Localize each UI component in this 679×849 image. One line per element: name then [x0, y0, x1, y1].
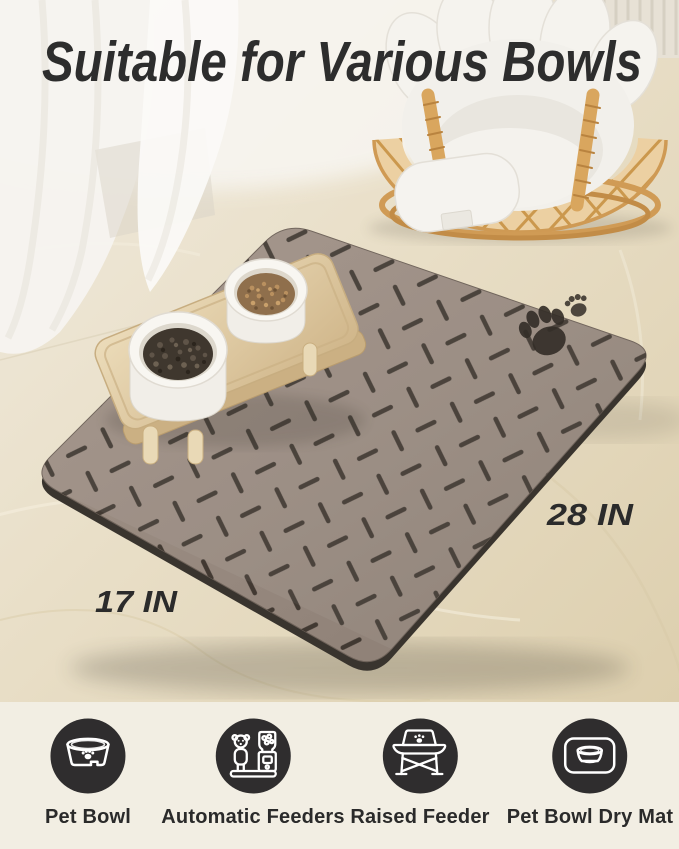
pet-bowl-left: [129, 312, 227, 421]
raised-feeder-icon: [381, 717, 459, 795]
feature-pet-bowl-dry-mat: Pet Bowl Dry Mat: [507, 717, 674, 829]
feature-automatic-feeders: Automatic Feeders: [161, 717, 344, 829]
feature-label: Raised Feeder: [350, 806, 489, 829]
feature-label: Automatic Feeders: [161, 806, 344, 829]
feature-label: Pet Bowl Dry Mat: [507, 806, 674, 829]
pet-bowl-icon: [49, 717, 127, 795]
feature-raised-feeder: Raised Feeder: [350, 717, 489, 829]
photo-illustration: 28 IN 17 IN Suitable for Various Bowls: [0, 0, 679, 702]
pet-bowl-right: [225, 259, 307, 343]
product-image: 28 IN 17 IN Suitable for Various Bowls: [0, 0, 679, 849]
feature-label: Pet Bowl: [45, 806, 131, 829]
dimension-depth-label: 17 IN: [95, 584, 178, 619]
page-title: Suitable for Various Bowls: [42, 30, 642, 94]
feature-strip: Pet Bowl: [0, 702, 679, 849]
dimension-width-label: 28 IN: [546, 497, 634, 532]
feature-pet-bowl: Pet Bowl: [45, 717, 131, 829]
automatic-feeder-icon: [214, 717, 292, 795]
pet-bowl-dry-mat-icon: [551, 717, 629, 795]
